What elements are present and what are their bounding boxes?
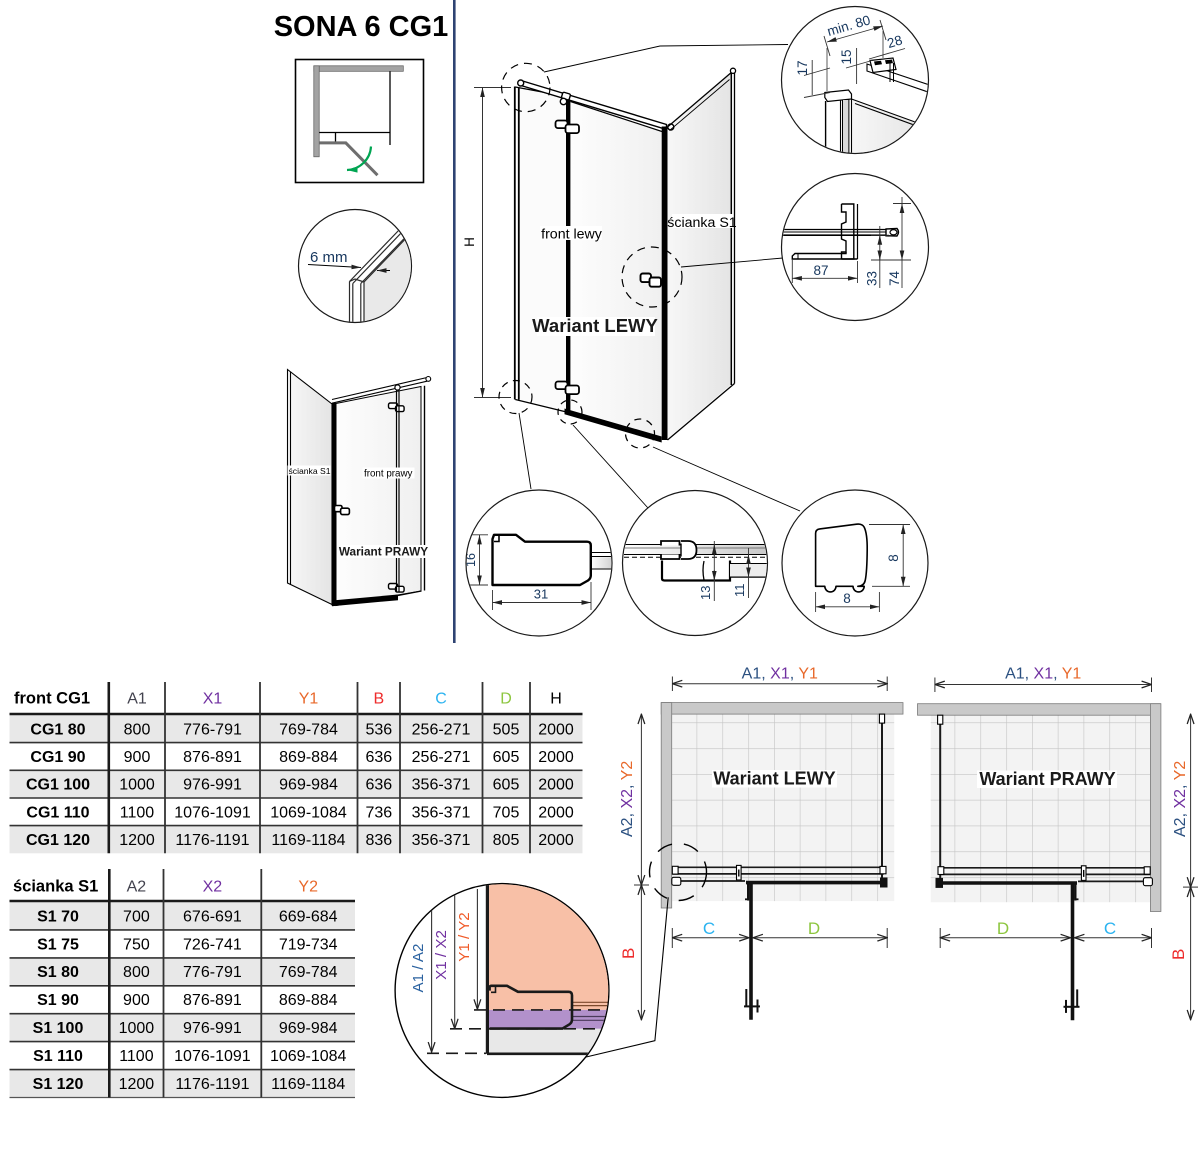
svg-text:356-371: 356-371 — [412, 832, 471, 849]
svg-text:2000: 2000 — [538, 777, 574, 794]
svg-text:Wariant LEWY: Wariant LEWY — [713, 769, 835, 789]
svg-text:769-784: 769-784 — [279, 721, 338, 738]
svg-text:676-691: 676-691 — [183, 908, 242, 925]
svg-text:X1: X1 — [203, 691, 223, 708]
svg-text:976-991: 976-991 — [183, 777, 242, 794]
svg-text:H: H — [462, 237, 477, 247]
svg-text:1200: 1200 — [119, 832, 155, 849]
svg-text:S1 120: S1 120 — [33, 1076, 84, 1093]
svg-text:736: 736 — [365, 804, 392, 821]
svg-text:900: 900 — [124, 749, 151, 766]
svg-text:S1 100: S1 100 — [33, 1020, 84, 1037]
svg-text:D: D — [808, 919, 820, 938]
svg-text:705: 705 — [493, 804, 520, 821]
svg-text:976-991: 976-991 — [183, 1020, 242, 1037]
svg-text:2000: 2000 — [538, 749, 574, 766]
svg-text:356-371: 356-371 — [412, 777, 471, 794]
svg-text:front lewy: front lewy — [541, 227, 603, 243]
svg-text:CG1 80: CG1 80 — [30, 721, 85, 738]
svg-text:CG1 90: CG1 90 — [30, 749, 85, 766]
svg-text:1069-1084: 1069-1084 — [270, 804, 347, 821]
svg-text:1076-1091: 1076-1091 — [174, 1048, 251, 1065]
svg-text:1169-1184: 1169-1184 — [271, 832, 345, 849]
svg-text:805: 805 — [493, 832, 520, 849]
svg-text:S1 70: S1 70 — [37, 908, 79, 925]
svg-text:1176-1191: 1176-1191 — [175, 832, 249, 849]
svg-text:726-741: 726-741 — [183, 936, 242, 953]
svg-text:Wariant PRAWY: Wariant PRAWY — [979, 769, 1115, 789]
svg-text:605: 605 — [493, 749, 520, 766]
svg-text:1000: 1000 — [119, 1020, 155, 1037]
svg-text:1000: 1000 — [119, 777, 155, 794]
svg-text:1169-1184: 1169-1184 — [271, 1076, 345, 1093]
svg-text:33: 33 — [865, 271, 880, 286]
svg-text:11: 11 — [732, 584, 747, 598]
svg-text:D: D — [997, 919, 1009, 938]
svg-text:969-984: 969-984 — [279, 1020, 338, 1037]
svg-text:Y1 / Y2: Y1 / Y2 — [456, 912, 473, 962]
svg-text:S1 75: S1 75 — [37, 936, 79, 953]
svg-text:636: 636 — [365, 777, 392, 794]
svg-text:A1, X1, Y1: A1, X1, Y1 — [742, 665, 818, 682]
svg-text:769-784: 769-784 — [279, 964, 338, 981]
svg-text:2000: 2000 — [538, 832, 574, 849]
svg-text:SONA 6 CG1: SONA 6 CG1 — [274, 11, 449, 43]
svg-text:ścianka S1: ścianka S1 — [13, 878, 98, 896]
svg-text:776-791: 776-791 — [183, 964, 242, 981]
svg-text:D: D — [500, 691, 512, 708]
svg-text:A1 / A2: A1 / A2 — [410, 944, 427, 993]
svg-text:Wariant PRAWY: Wariant PRAWY — [339, 545, 428, 559]
svg-text:front prawy: front prawy — [364, 469, 413, 480]
svg-text:2000: 2000 — [538, 804, 574, 821]
svg-text:A2: A2 — [127, 879, 147, 896]
svg-text:ścianka S1: ścianka S1 — [667, 215, 737, 231]
svg-text:A2, X2, Y2: A2, X2, Y2 — [619, 761, 636, 837]
svg-text:869-884: 869-884 — [279, 992, 338, 1009]
svg-text:1076-1091: 1076-1091 — [174, 804, 251, 821]
svg-text:869-884: 869-884 — [279, 749, 338, 766]
svg-text:A1, X1, Y1: A1, X1, Y1 — [1005, 665, 1081, 682]
svg-text:17: 17 — [795, 60, 810, 75]
svg-text:X2: X2 — [203, 879, 223, 896]
svg-text:S1 90: S1 90 — [37, 992, 79, 1009]
svg-text:256-271: 256-271 — [412, 721, 471, 738]
svg-text:669-684: 669-684 — [279, 908, 338, 925]
svg-text:C: C — [1104, 919, 1116, 938]
svg-text:256-271: 256-271 — [412, 749, 471, 766]
svg-text:1200: 1200 — [119, 1076, 155, 1093]
svg-text:636: 636 — [365, 749, 392, 766]
svg-text:S1 80: S1 80 — [37, 964, 79, 981]
svg-text:1176-1191: 1176-1191 — [175, 1076, 249, 1093]
svg-text:B: B — [1169, 949, 1188, 960]
svg-text:876-891: 876-891 — [183, 992, 242, 1009]
svg-text:969-984: 969-984 — [279, 777, 338, 794]
svg-text:1100: 1100 — [119, 1048, 154, 1065]
svg-text:8: 8 — [843, 591, 851, 606]
svg-text:800: 800 — [124, 721, 151, 738]
svg-text:A1: A1 — [127, 691, 147, 708]
svg-text:X1 / X2: X1 / X2 — [433, 930, 450, 980]
svg-text:ścianka S1: ścianka S1 — [289, 466, 331, 476]
svg-text:Wariant LEWY: Wariant LEWY — [532, 315, 658, 336]
svg-text:74: 74 — [887, 270, 902, 286]
svg-text:Y1: Y1 — [299, 691, 319, 708]
svg-text:776-791: 776-791 — [183, 721, 242, 738]
svg-text:700: 700 — [123, 908, 150, 925]
svg-text:1100: 1100 — [120, 804, 155, 821]
svg-text:356-371: 356-371 — [412, 804, 471, 821]
svg-text:S1 110: S1 110 — [33, 1048, 83, 1065]
svg-text:6 mm: 6 mm — [310, 249, 348, 266]
svg-text:719-734: 719-734 — [279, 936, 338, 953]
svg-text:8: 8 — [886, 554, 901, 562]
svg-text:31: 31 — [534, 587, 548, 602]
svg-text:B: B — [619, 948, 638, 959]
svg-text:C: C — [703, 919, 715, 938]
svg-text:2000: 2000 — [538, 721, 574, 738]
svg-text:CG1 120: CG1 120 — [26, 832, 90, 849]
svg-text:A2, X2, Y2: A2, X2, Y2 — [1172, 761, 1189, 837]
svg-text:750: 750 — [123, 936, 150, 953]
svg-text:800: 800 — [123, 964, 150, 981]
svg-text:Y2: Y2 — [298, 879, 318, 896]
svg-text:13: 13 — [698, 586, 713, 600]
svg-text:H: H — [550, 691, 562, 708]
svg-text:B: B — [373, 691, 384, 708]
svg-text:15: 15 — [839, 49, 854, 64]
svg-text:505: 505 — [493, 721, 520, 738]
svg-text:C: C — [435, 691, 447, 708]
svg-text:CG1 110: CG1 110 — [26, 804, 89, 821]
svg-text:CG1 100: CG1 100 — [26, 777, 90, 794]
svg-text:front CG1: front CG1 — [14, 690, 90, 708]
svg-text:900: 900 — [123, 992, 150, 1009]
svg-text:87: 87 — [813, 263, 828, 278]
svg-text:836: 836 — [365, 832, 392, 849]
svg-text:605: 605 — [493, 777, 520, 794]
svg-text:1069-1084: 1069-1084 — [270, 1048, 347, 1065]
svg-text:536: 536 — [365, 721, 392, 738]
svg-text:876-891: 876-891 — [183, 749, 242, 766]
